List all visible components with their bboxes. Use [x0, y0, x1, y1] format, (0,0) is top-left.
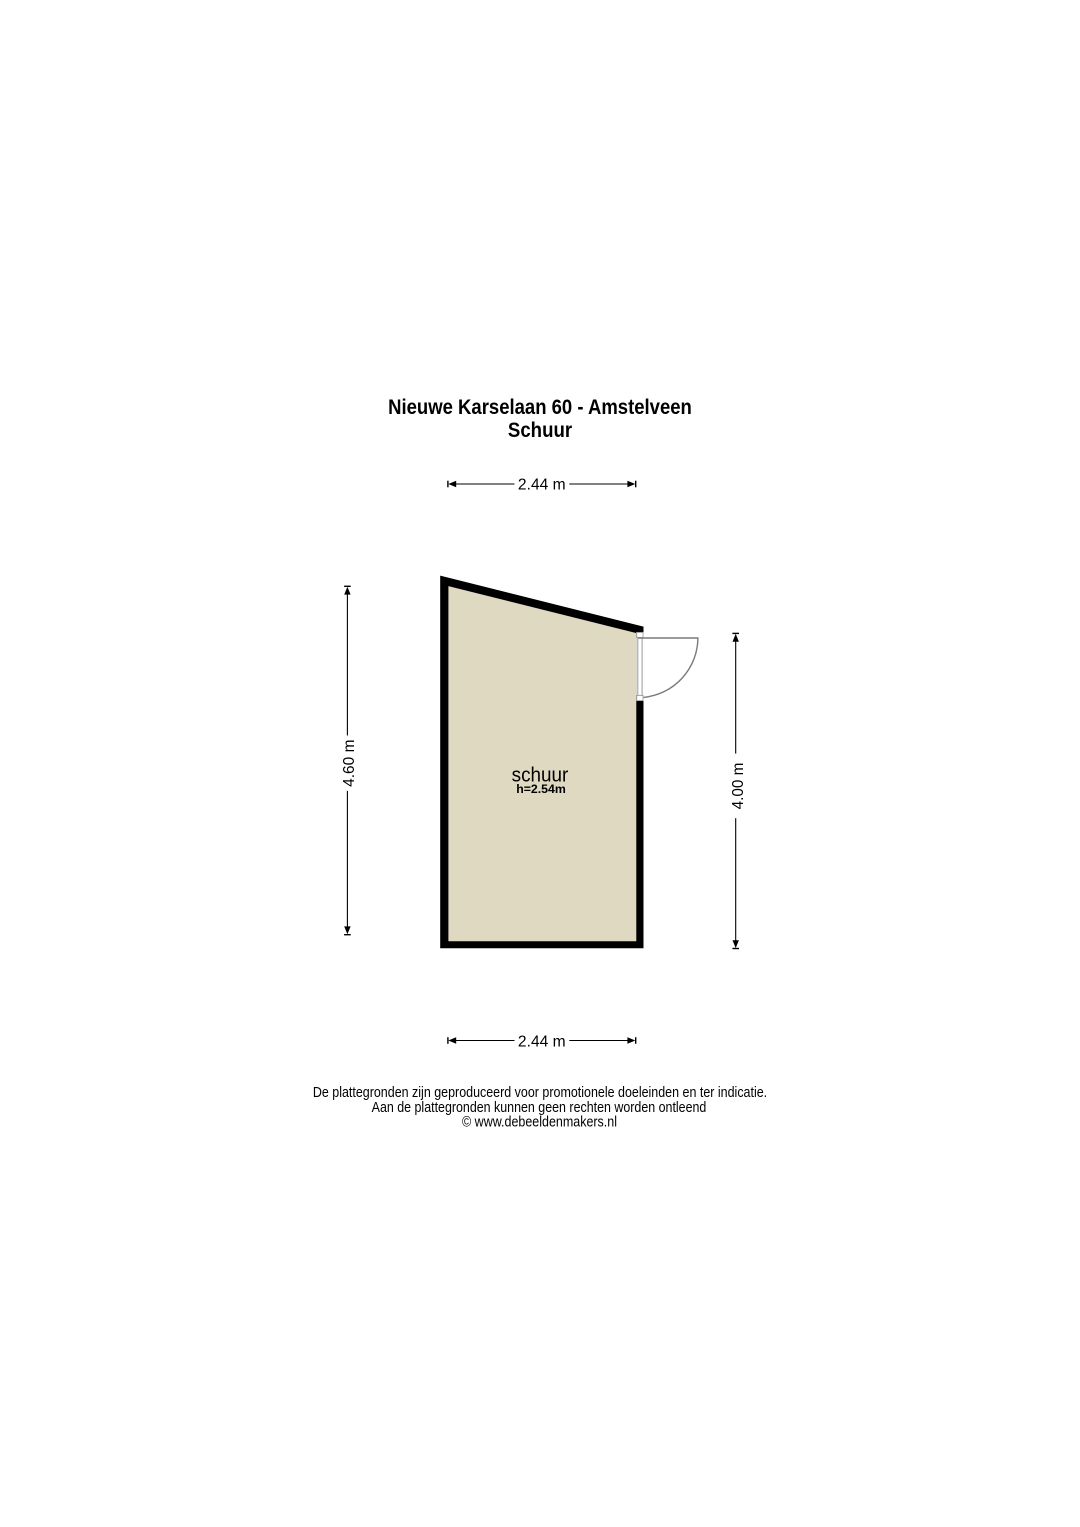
svg-text:© www.debeeldenmakers.nl: © www.debeeldenmakers.nl — [462, 1115, 617, 1131]
svg-text:h=2.54m: h=2.54m — [516, 782, 566, 796]
svg-text:Schuur: Schuur — [508, 418, 573, 442]
svg-text:De plattegronden zijn geproduc: De plattegronden zijn geproduceerd voor … — [313, 1085, 767, 1101]
svg-text:4.60 m: 4.60 m — [341, 740, 358, 787]
svg-text:2.44 m: 2.44 m — [518, 477, 566, 494]
svg-text:2.44 m: 2.44 m — [518, 1033, 566, 1050]
svg-text:4.00 m: 4.00 m — [730, 763, 747, 810]
svg-text:Nieuwe Karselaan 60 - Amstelve: Nieuwe Karselaan 60 - Amstelveen — [388, 395, 692, 419]
